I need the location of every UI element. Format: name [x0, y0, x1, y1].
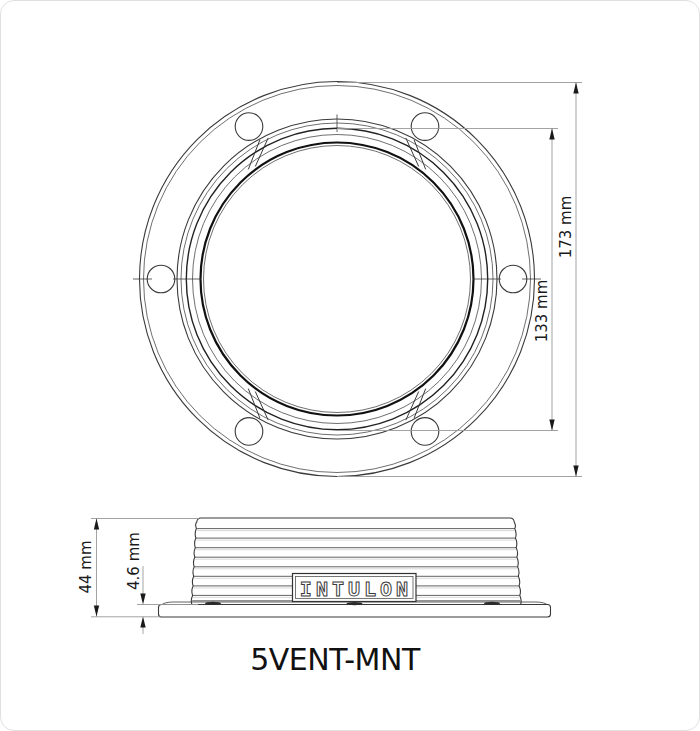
arrowhead-up	[549, 129, 554, 140]
opening-inner-edge	[204, 146, 471, 413]
bolt-hole	[411, 418, 439, 446]
height-label: 44 mm	[77, 540, 95, 593]
arrowhead-up	[140, 617, 145, 628]
twist-lock-notches	[248, 138, 425, 420]
extension-lines-173	[337, 83, 582, 477]
brand-badge: INTULON	[293, 574, 417, 602]
outer-diameter-label: 173 mm	[557, 196, 575, 259]
arrowhead-down	[549, 420, 554, 431]
drawing-sheet: 173 mm 133 mm INTULON	[0, 0, 700, 731]
dimension-flange-thickness: 4.6 mm	[125, 532, 199, 634]
inner-diameter-circle	[186, 128, 487, 429]
bolt-holes	[147, 113, 527, 445]
bolt-hole	[235, 113, 263, 141]
side-view: INTULON	[159, 518, 551, 617]
inner-diameter-label: 133 mm	[533, 280, 551, 343]
bolt-hole	[235, 418, 263, 446]
flange-plate	[159, 605, 551, 618]
extension-lines-133	[337, 129, 558, 431]
flange-thickness-label: 4.6 mm	[125, 532, 143, 590]
top-view	[133, 82, 541, 477]
opening-edge-circle	[201, 143, 474, 416]
arrowhead-down	[573, 466, 578, 477]
dimension-outer-diameter: 173 mm	[337, 83, 582, 477]
flange-hole-mark	[347, 602, 363, 605]
arrowhead-up	[94, 519, 99, 530]
arrowhead-down	[140, 594, 145, 605]
inner-ring-inner-edge	[181, 123, 493, 435]
inner-ring-outer-edge	[177, 119, 497, 439]
center-tick-marks	[133, 115, 541, 280]
arrowhead-down	[94, 606, 99, 617]
technical-drawing: 173 mm 133 mm INTULON	[1, 1, 700, 731]
arrowhead-up	[573, 83, 578, 94]
flange-hole-mark	[484, 602, 500, 605]
dimension-inner-diameter: 133 mm	[337, 129, 558, 431]
flange-hole-mark	[205, 602, 221, 605]
part-title: 5VENT-MNT	[250, 642, 421, 677]
bolt-hole	[411, 113, 439, 141]
brand-label: INTULON	[300, 577, 412, 601]
tab-relief-circle	[193, 135, 482, 424]
